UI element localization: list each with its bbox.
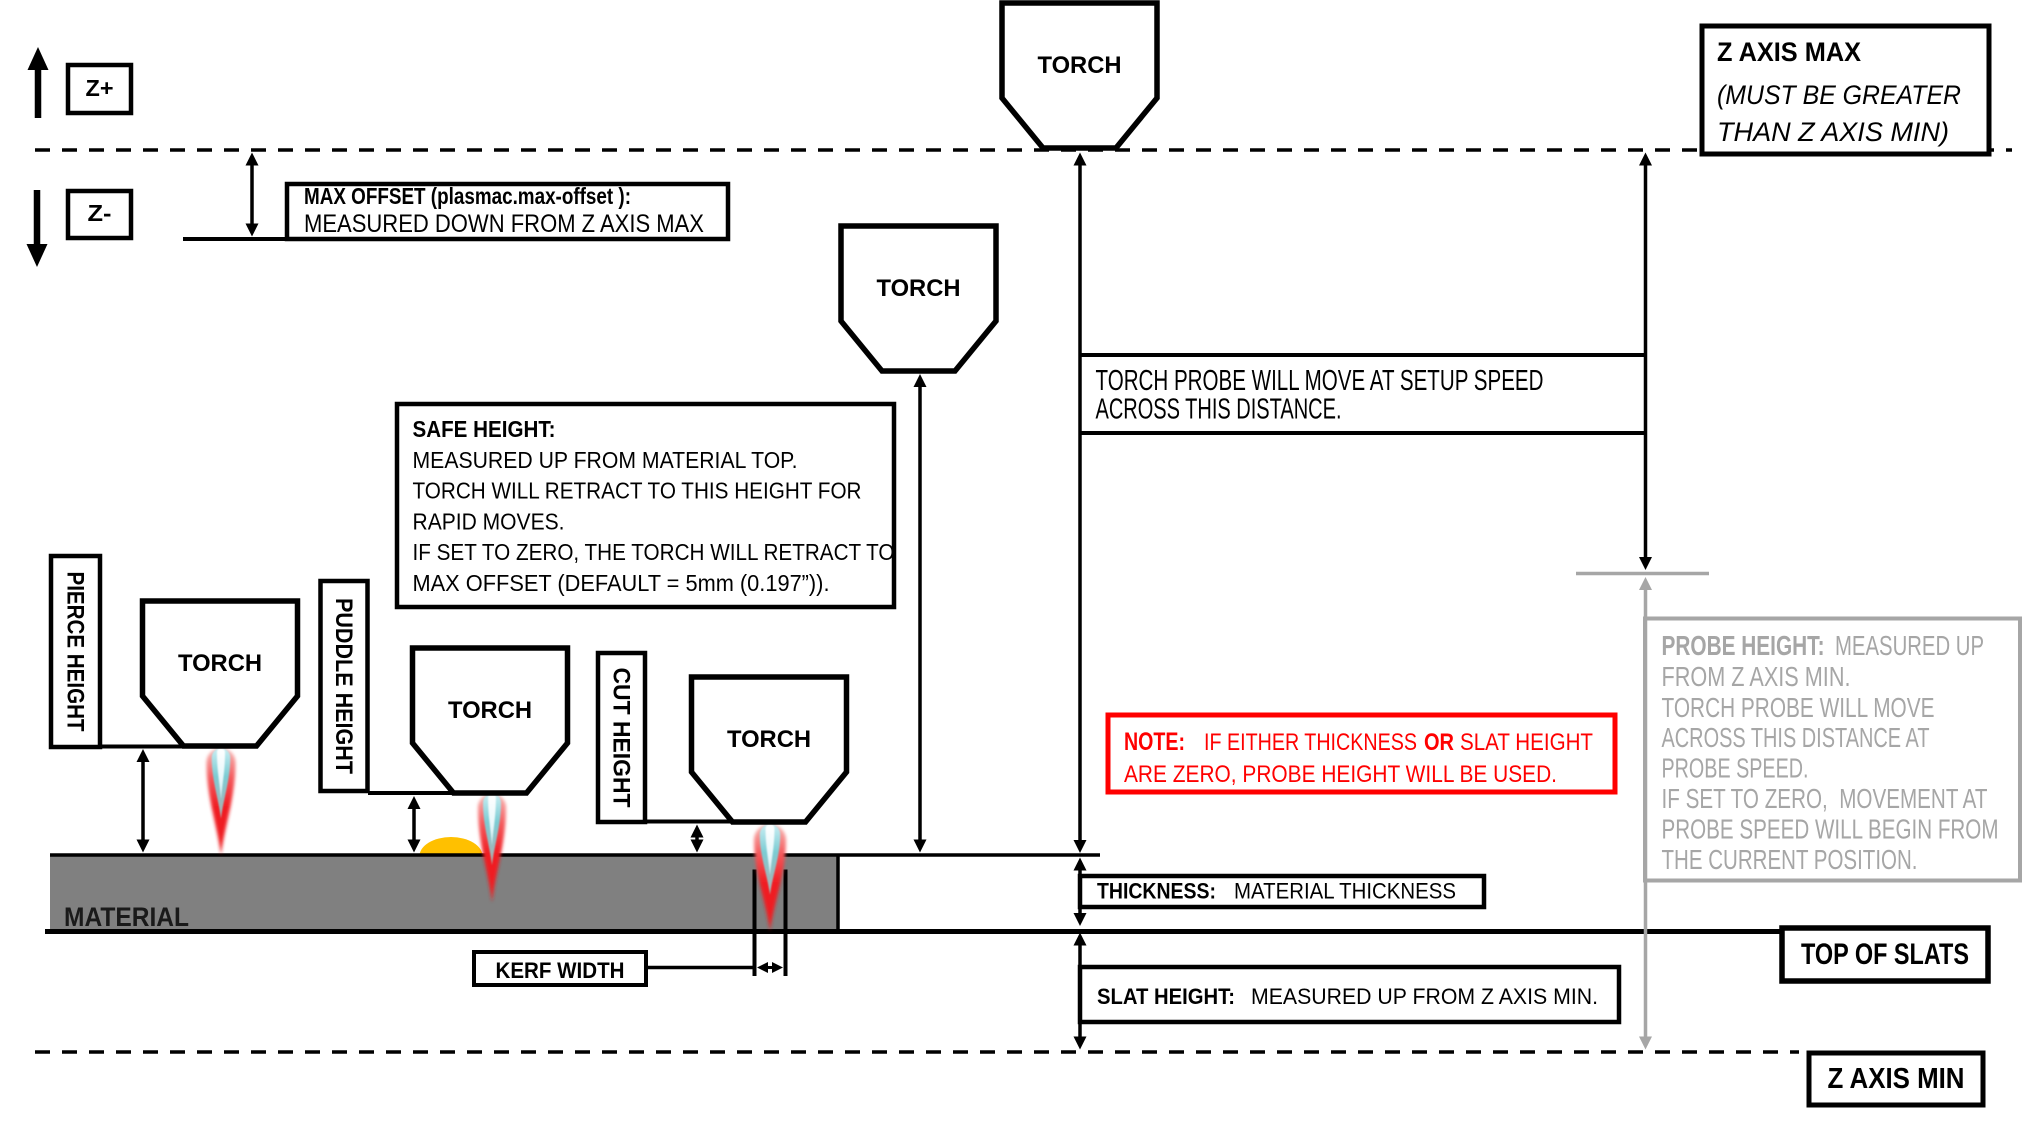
svg-text:OR: OR <box>1424 729 1454 756</box>
svg-text:TORCH: TORCH <box>178 650 262 677</box>
svg-text:MEASURED UP FROM Z AXIS MIN.: MEASURED UP FROM Z AXIS MIN. <box>1251 984 1598 1009</box>
svg-text:THAN Z AXIS MIN): THAN Z AXIS MIN) <box>1717 117 1949 147</box>
svg-text:RAPID MOVES.: RAPID MOVES. <box>413 508 565 534</box>
svg-text:IF SET TO ZERO, THE TORCH WILL: IF SET TO ZERO, THE TORCH WILL RETRACT T… <box>413 539 895 565</box>
svg-text:PROBE SPEED WILL BEGIN FROM: PROBE SPEED WILL BEGIN FROM <box>1662 814 1999 845</box>
svg-text:MEASURED UP: MEASURED UP <box>1835 630 1984 661</box>
svg-text:KERF WIDTH: KERF WIDTH <box>496 958 625 983</box>
svg-text:PUDDLE HEIGHT: PUDDLE HEIGHT <box>330 598 357 774</box>
svg-text:Z AXIS MAX: Z AXIS MAX <box>1717 37 1861 67</box>
svg-text:PROBE SPEED.: PROBE SPEED. <box>1662 753 1809 784</box>
svg-text:MATERIAL: MATERIAL <box>64 902 189 932</box>
svg-text:SLAT HEIGHT:: SLAT HEIGHT: <box>1097 984 1235 1009</box>
svg-text:PROBE HEIGHT:: PROBE HEIGHT: <box>1662 630 1825 661</box>
svg-text:THICKNESS:: THICKNESS: <box>1097 879 1216 904</box>
svg-text:PIERCE HEIGHT: PIERCE HEIGHT <box>62 572 89 732</box>
svg-text:ACROSS THIS DISTANCE.: ACROSS THIS DISTANCE. <box>1096 394 1342 426</box>
svg-text:NOTE:: NOTE: <box>1124 729 1185 756</box>
svg-text:TORCH PROBE WILL MOVE: TORCH PROBE WILL MOVE <box>1662 692 1935 723</box>
svg-text:IF SET TO ZERO, MOVEMENT AT: IF SET TO ZERO, MOVEMENT AT <box>1662 783 1988 814</box>
svg-text:TORCH: TORCH <box>1038 52 1122 79</box>
svg-text:FROM Z AXIS MIN.: FROM Z AXIS MIN. <box>1662 661 1851 692</box>
svg-text:TORCH WILL RETRACT TO THIS HEI: TORCH WILL RETRACT TO THIS HEIGHT FOR <box>413 478 862 504</box>
svg-text:TORCH: TORCH <box>877 275 961 302</box>
svg-text:Z AXIS MIN: Z AXIS MIN <box>1828 1063 1965 1095</box>
svg-text:THE CURRENT POSITION.: THE CURRENT POSITION. <box>1662 844 1918 875</box>
svg-text:TORCH: TORCH <box>448 697 532 724</box>
svg-text:Z+: Z+ <box>86 75 114 101</box>
svg-text:(MUST BE GREATER: (MUST BE GREATER <box>1717 80 1961 110</box>
svg-text:IF EITHER THICKNESS: IF EITHER THICKNESS <box>1204 729 1417 756</box>
svg-text:Z-: Z- <box>88 200 112 226</box>
svg-text:MEASURED DOWN FROM Z AXIS MAX: MEASURED DOWN FROM Z AXIS MAX <box>304 210 704 238</box>
svg-text:MEASURED UP FROM MATERIAL TOP.: MEASURED UP FROM MATERIAL TOP. <box>413 447 798 473</box>
svg-text:TORCH: TORCH <box>727 726 811 753</box>
svg-text:SAFE HEIGHT:: SAFE HEIGHT: <box>413 416 556 442</box>
svg-text:TOP OF SLATS: TOP OF SLATS <box>1801 938 1969 971</box>
svg-text:ARE ZERO, PROBE HEIGHT WILL BE: ARE ZERO, PROBE HEIGHT WILL BE USED. <box>1124 761 1557 788</box>
svg-text:MAX OFFSET (plasmac.max-offset: MAX OFFSET (plasmac.max-offset ): <box>304 183 631 209</box>
svg-text:TORCH PROBE WILL MOVE AT SETUP: TORCH PROBE WILL MOVE AT SETUP SPEED <box>1096 365 1544 397</box>
svg-text:MATERIAL THICKNESS: MATERIAL THICKNESS <box>1234 879 1456 904</box>
svg-text:MAX OFFSET (DEFAULT = 5mm (0.1: MAX OFFSET (DEFAULT = 5mm (0.197”)). <box>413 570 830 596</box>
svg-text:SLAT HEIGHT: SLAT HEIGHT <box>1460 729 1593 756</box>
svg-text:ACROSS THIS DISTANCE AT: ACROSS THIS DISTANCE AT <box>1662 722 1930 753</box>
svg-text:CUT HEIGHT: CUT HEIGHT <box>608 668 635 808</box>
